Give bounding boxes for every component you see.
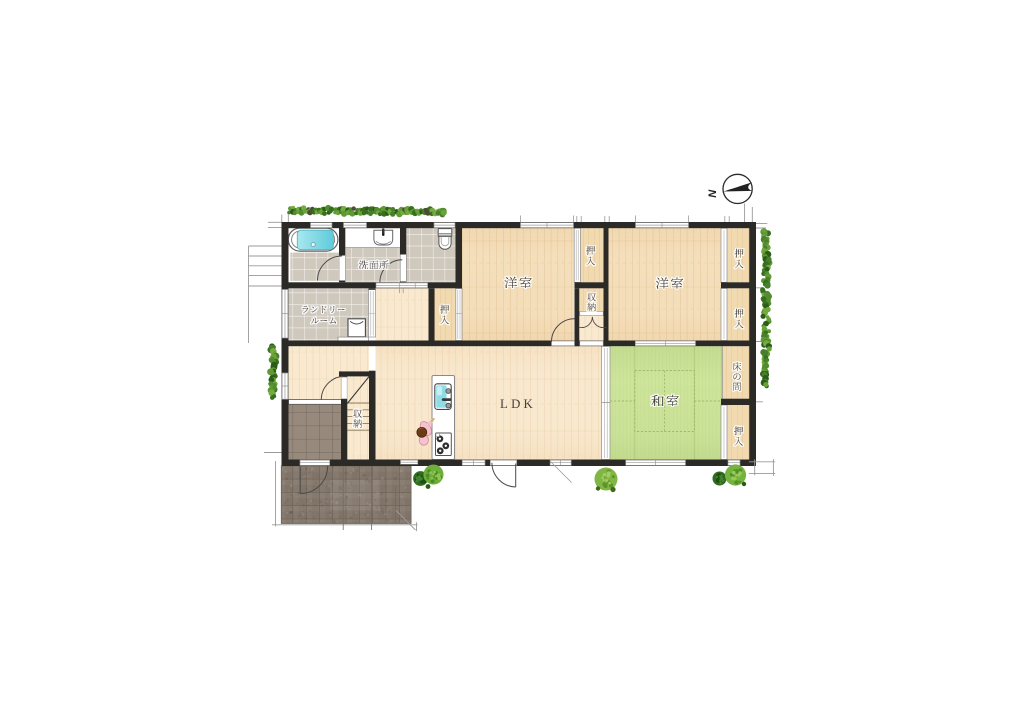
svg-text:LDK: LDK xyxy=(500,397,536,411)
svg-text:N: N xyxy=(707,189,719,198)
